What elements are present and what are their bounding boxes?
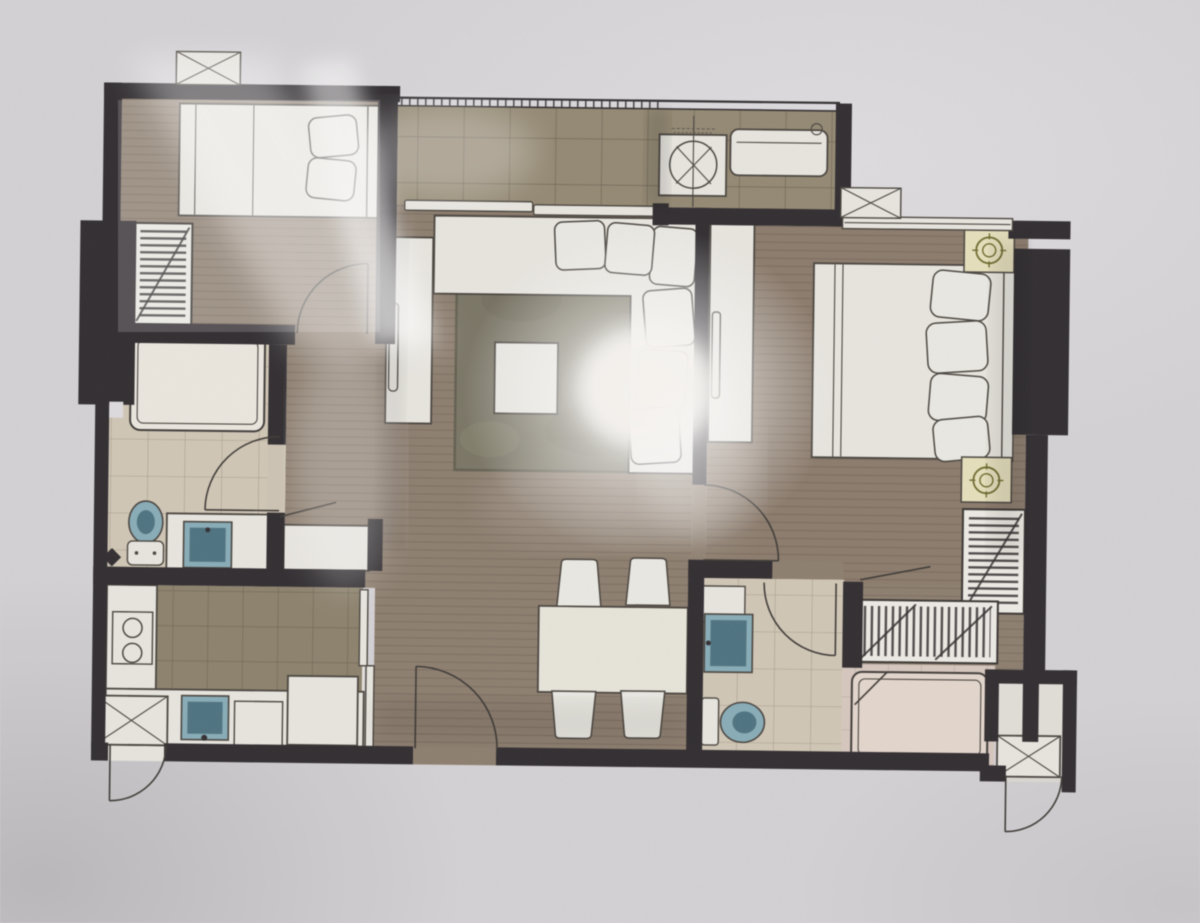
photo-grain — [0, 0, 1200, 923]
floor-plan-canvas — [0, 0, 1200, 923]
floor-plan-photo — [0, 0, 1200, 923]
glare-overlays — [0, 0, 1200, 923]
